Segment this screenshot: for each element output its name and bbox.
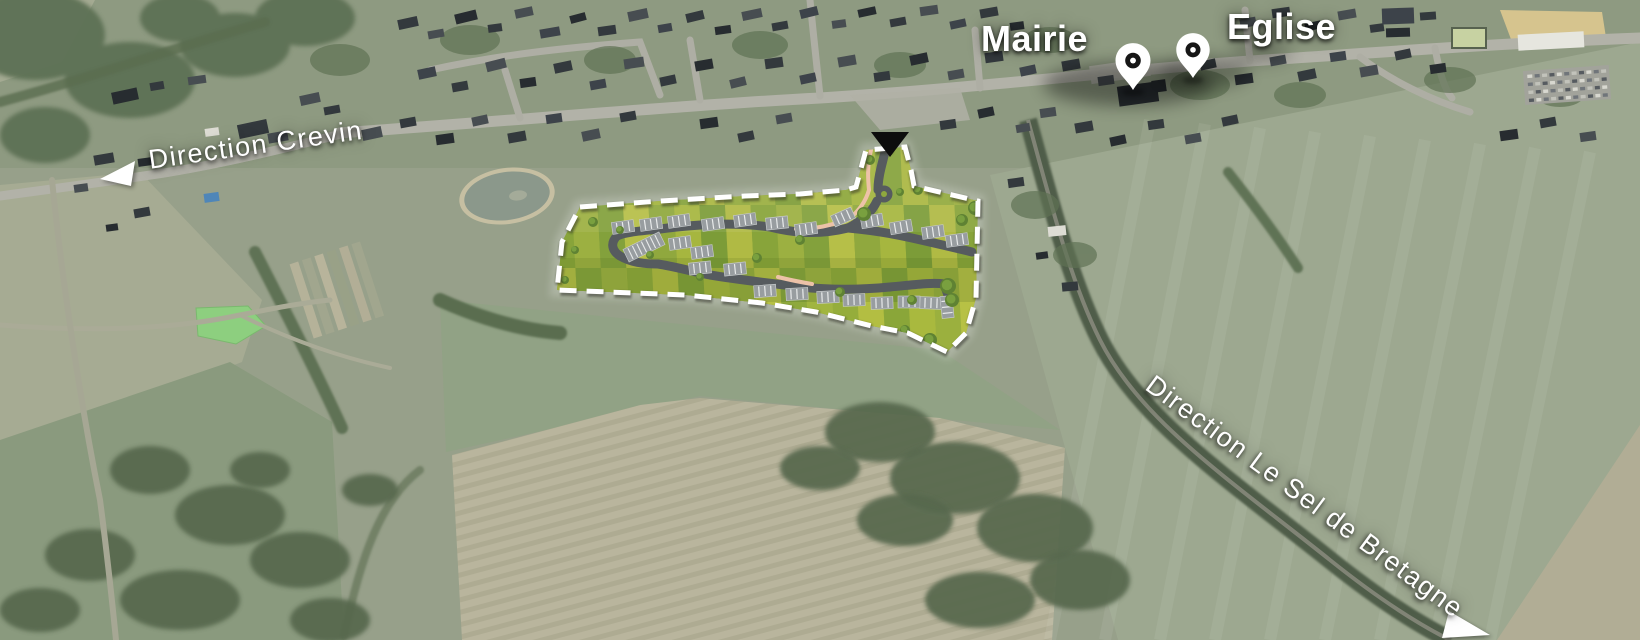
landmark-label-mairie: Mairie bbox=[981, 21, 1088, 57]
aerial-map: Mairie Eglise Direction Crevin Direction… bbox=[0, 0, 1640, 640]
landmark-label-eglise: Eglise bbox=[1227, 9, 1336, 45]
